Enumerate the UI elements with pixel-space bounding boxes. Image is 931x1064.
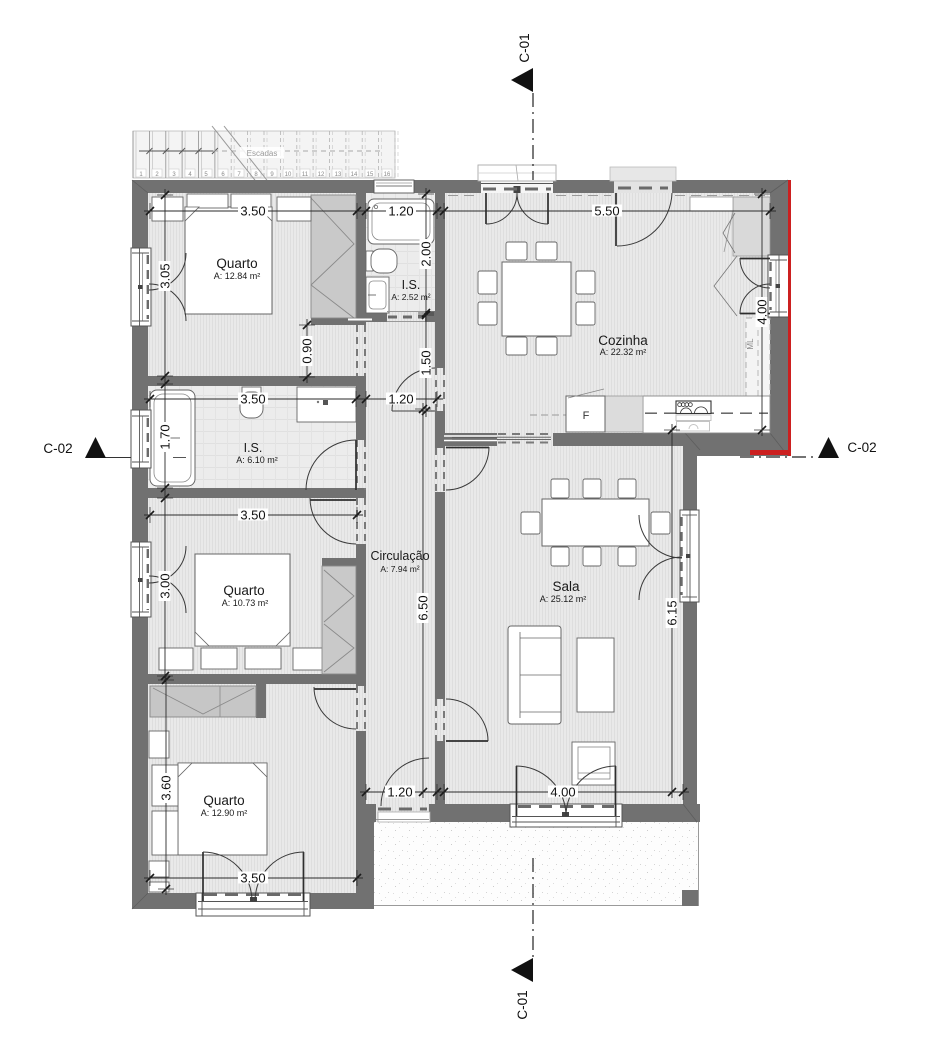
svg-text:3.50: 3.50: [240, 392, 265, 407]
svg-text:C-02: C-02: [43, 441, 72, 456]
svg-text:A: 10.73 m²: A: 10.73 m²: [222, 598, 269, 608]
svg-text:3.05: 3.05: [158, 263, 173, 288]
svg-text:14: 14: [351, 172, 358, 178]
svg-text:10: 10: [285, 172, 292, 178]
svg-text:11: 11: [302, 172, 309, 178]
svg-text:Escadas: Escadas: [247, 149, 278, 158]
svg-text:3.00: 3.00: [158, 573, 173, 598]
svg-text:C-01: C-01: [515, 990, 530, 1019]
svg-text:1.50: 1.50: [419, 350, 434, 375]
svg-text:15: 15: [367, 172, 374, 178]
svg-text:A: 12.90 m²: A: 12.90 m²: [201, 808, 248, 818]
svg-text:3.50: 3.50: [240, 508, 265, 523]
svg-text:16: 16: [384, 172, 391, 178]
svg-text:6.15: 6.15: [665, 600, 680, 625]
svg-text:5.50: 5.50: [594, 204, 619, 219]
svg-text:A: 2.52 m²: A: 2.52 m²: [391, 292, 430, 302]
svg-text:13: 13: [335, 172, 342, 178]
svg-text:3.60: 3.60: [159, 775, 174, 800]
svg-text:Quarto: Quarto: [216, 256, 257, 271]
svg-text:3.50: 3.50: [240, 204, 265, 219]
svg-text:I.S.: I.S.: [244, 441, 263, 455]
svg-text:C-01: C-01: [517, 33, 532, 62]
svg-text:1.20: 1.20: [388, 392, 413, 407]
svg-text:A: 7.94 m²: A: 7.94 m²: [380, 564, 419, 574]
svg-text:A: 25.12 m²: A: 25.12 m²: [540, 594, 587, 604]
svg-text:1.20: 1.20: [388, 204, 413, 219]
svg-text:Sala: Sala: [552, 579, 580, 594]
svg-text:ML: ML: [746, 338, 755, 350]
svg-text:2.00: 2.00: [419, 241, 434, 266]
svg-text:A: 12.84 m²: A: 12.84 m²: [214, 271, 261, 281]
svg-text:1.20: 1.20: [387, 785, 412, 800]
svg-text:A: 6.10 m²: A: 6.10 m²: [236, 455, 278, 465]
svg-text:4.00: 4.00: [550, 785, 575, 800]
svg-text:A: 22.32 m²: A: 22.32 m²: [600, 347, 647, 357]
svg-text:0.90: 0.90: [300, 338, 315, 363]
svg-text:F: F: [583, 410, 590, 422]
svg-text:Circulação: Circulação: [370, 549, 429, 563]
svg-text:Quarto: Quarto: [203, 793, 244, 808]
svg-text:4.00: 4.00: [755, 299, 770, 324]
svg-text:3.50: 3.50: [240, 871, 265, 886]
svg-text:Cozinha: Cozinha: [598, 333, 648, 348]
svg-text:I.S.: I.S.: [402, 278, 421, 292]
svg-text:Quarto: Quarto: [223, 583, 264, 598]
svg-text:12: 12: [318, 172, 325, 178]
svg-text:6.50: 6.50: [416, 595, 431, 620]
svg-text:1.70: 1.70: [158, 424, 173, 449]
svg-text:C-02: C-02: [847, 440, 876, 455]
